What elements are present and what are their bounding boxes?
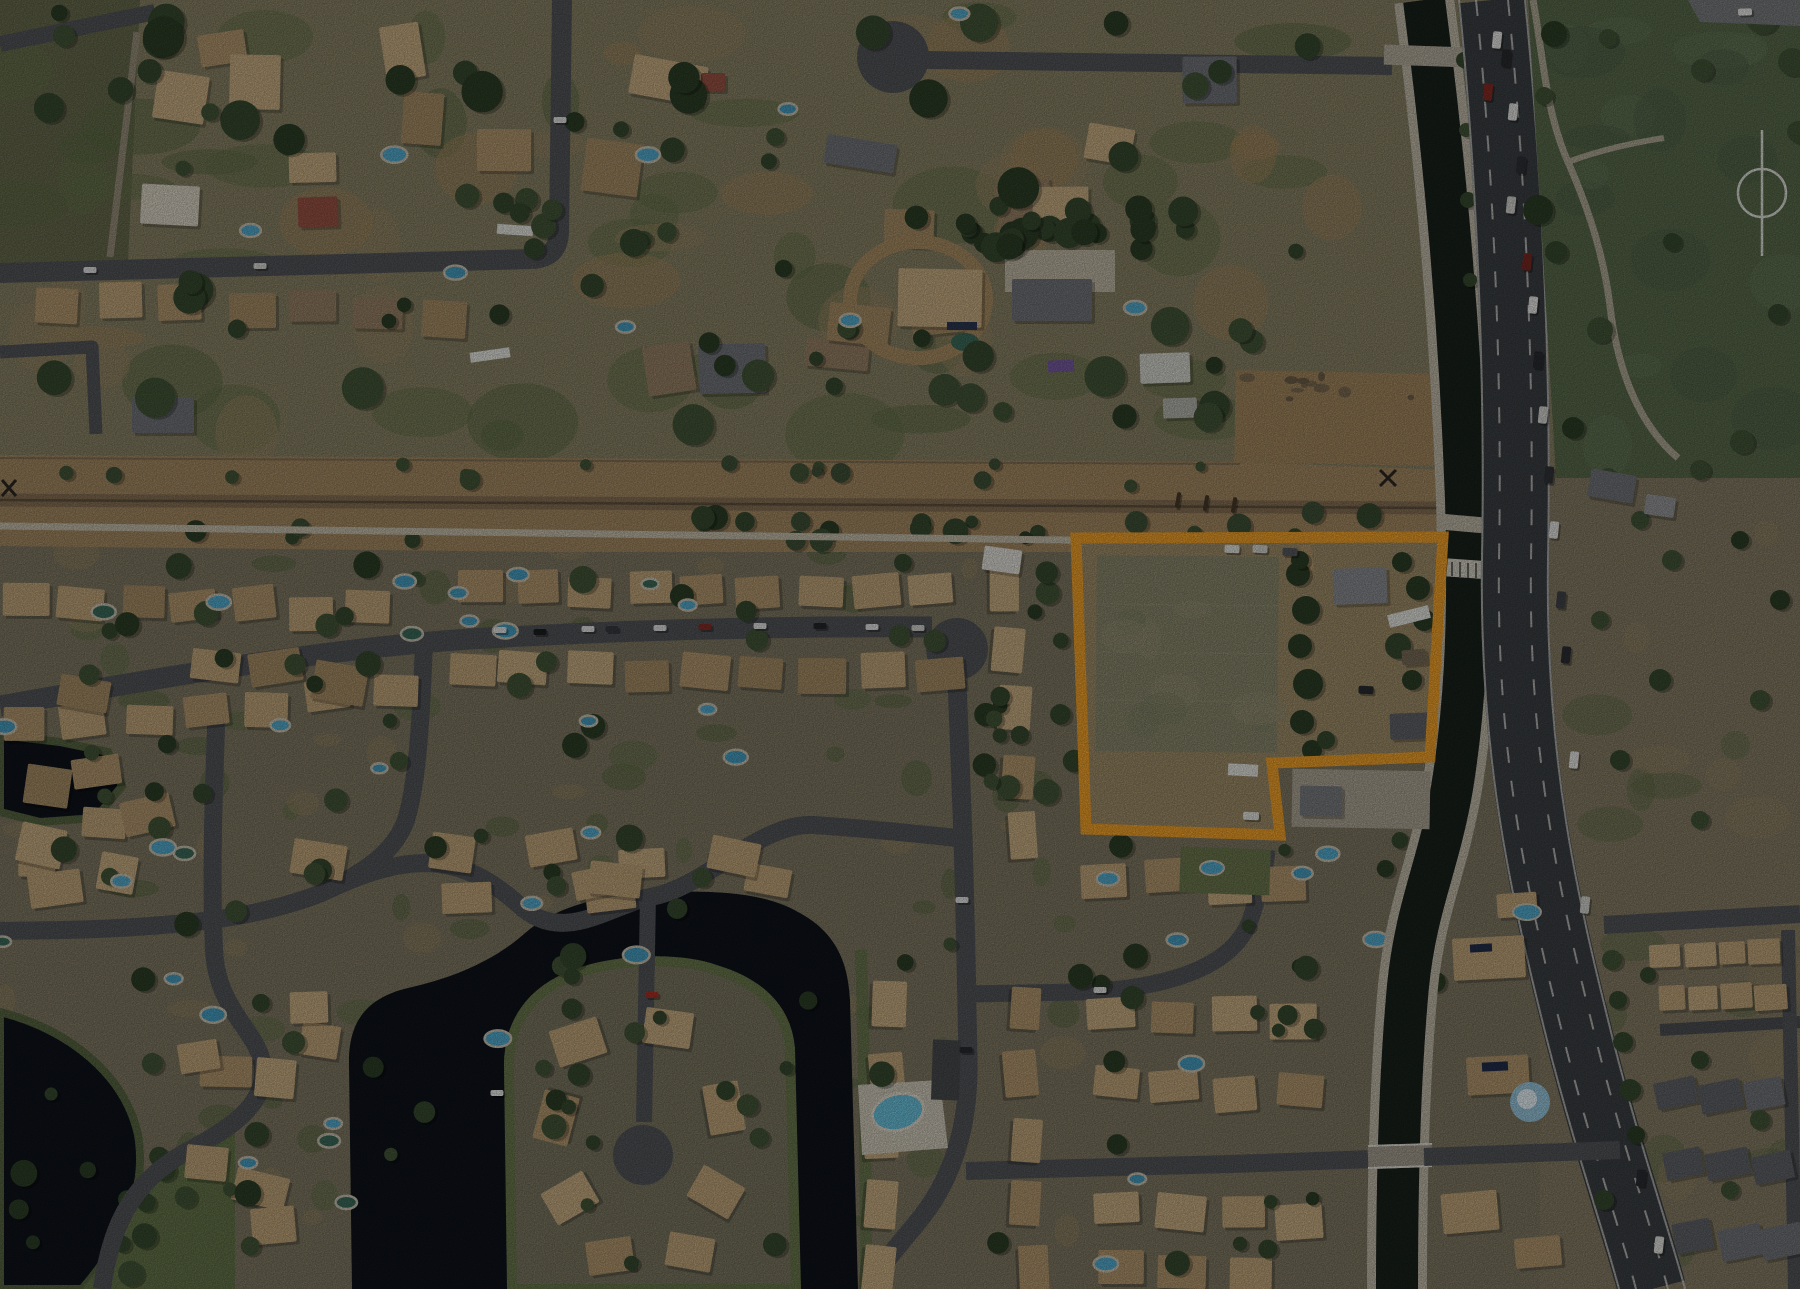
photo-grain-overlay <box>0 0 1800 1289</box>
satellite-map-screenshot <box>0 0 1800 1289</box>
aerial-imagery <box>0 0 1800 1289</box>
